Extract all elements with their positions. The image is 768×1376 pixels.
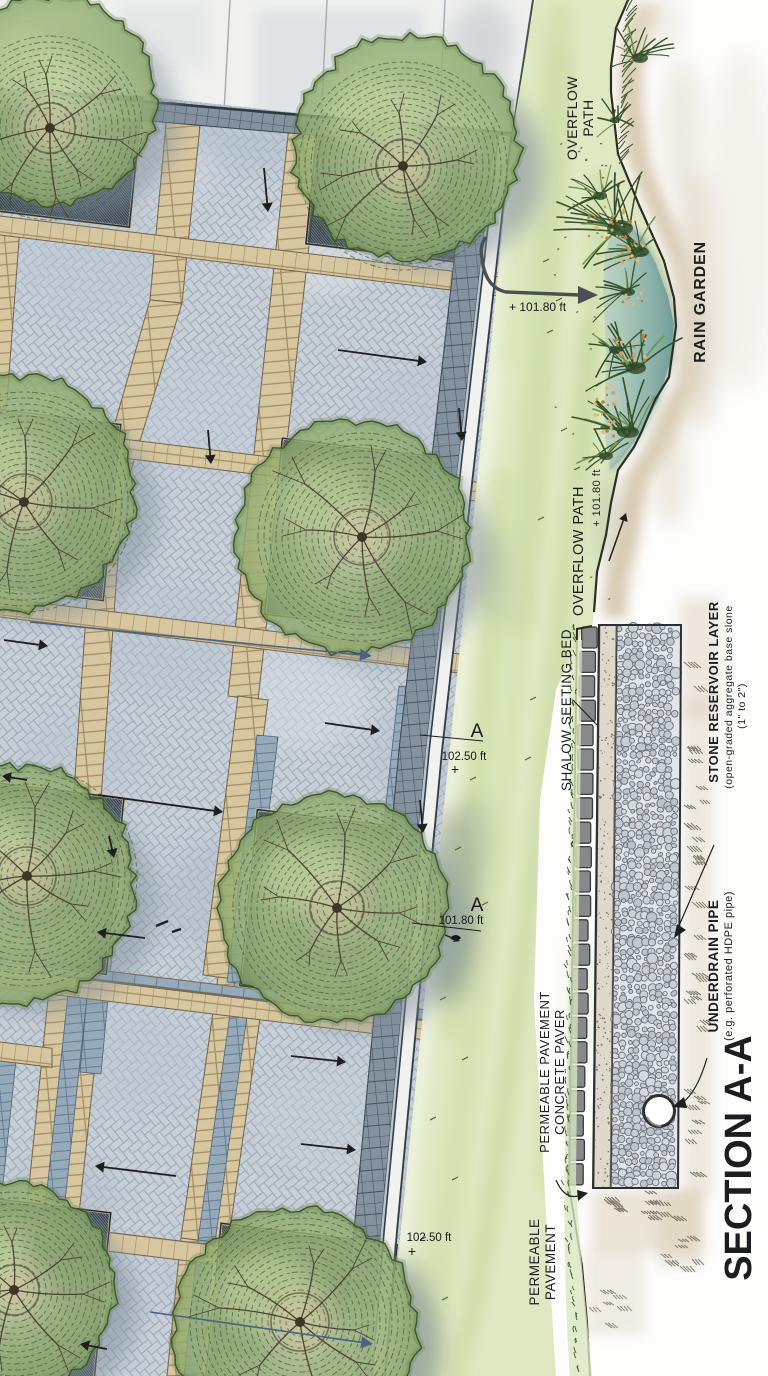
svg-text:102.50 ft: 102.50 ft	[442, 751, 488, 763]
svg-text:A: A	[471, 721, 484, 742]
svg-text:PERMEABLE PAVEMENT: PERMEABLE PAVEMENT	[537, 991, 552, 1153]
svg-text:RAIN GARDEN: RAIN GARDEN	[692, 241, 709, 363]
svg-text:STONE RESERVOIR LAYER: STONE RESERVOIR LAYER	[706, 601, 721, 783]
svg-text:CONCRETE PAVER: CONCRETE PAVER	[552, 1009, 567, 1135]
svg-text:SECTION A-A: SECTION A-A	[718, 1035, 760, 1281]
svg-text:PAVEMENT: PAVEMENT	[543, 1224, 558, 1300]
svg-text:PATH: PATH	[580, 99, 596, 136]
svg-text:A: A	[471, 895, 484, 916]
svg-text:(open-graded aggregate base sl: (open-graded aggregate base slone	[723, 605, 735, 788]
svg-text:+: +	[408, 1243, 416, 1259]
svg-text:UNDERDRAIN PIPE: UNDERDRAIN PIPE	[706, 900, 721, 1033]
svg-text:OVERFLOW PATH: OVERFLOW PATH	[571, 486, 587, 616]
svg-text:+: +	[451, 761, 459, 777]
svg-text:PERMEABLE: PERMEABLE	[527, 1218, 542, 1305]
svg-text:(e.g. perforated HDPE pipe): (e.g. perforated HDPE pipe)	[723, 891, 735, 1041]
svg-text:101.80 ft: 101.80 ft	[439, 915, 485, 927]
svg-text:OVERFLOW: OVERFLOW	[564, 76, 580, 160]
svg-text:(1" to 2"): (1" to 2")	[736, 683, 748, 729]
svg-text:+ 101.80 ft: + 101.80 ft	[509, 300, 567, 314]
svg-text:+ 101.80 ft: + 101.80 ft	[591, 469, 603, 527]
svg-text:SHALOW SEETING BED: SHALOW SEETING BED	[559, 629, 574, 791]
